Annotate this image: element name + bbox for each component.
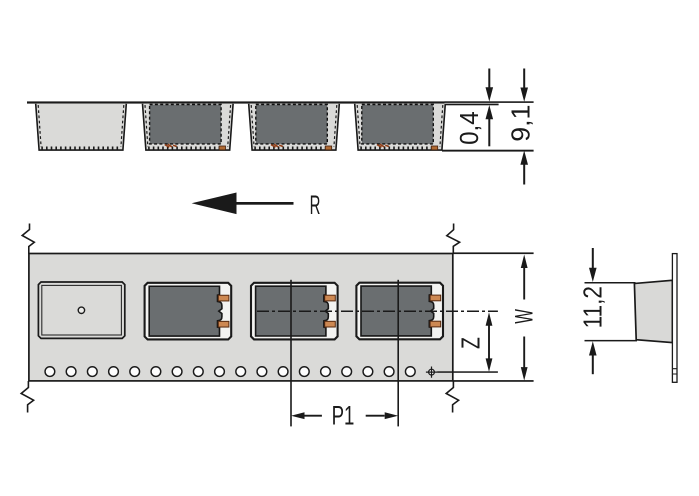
svg-text:0,4: 0,4	[455, 111, 484, 145]
svg-text:R: R	[310, 190, 321, 221]
svg-text:P1: P1	[332, 400, 355, 430]
svg-text:Z: Z	[456, 337, 485, 349]
svg-text:9,1: 9,1	[506, 105, 536, 142]
svg-text:11,2: 11,2	[579, 286, 608, 328]
svg-text:W: W	[511, 309, 539, 324]
